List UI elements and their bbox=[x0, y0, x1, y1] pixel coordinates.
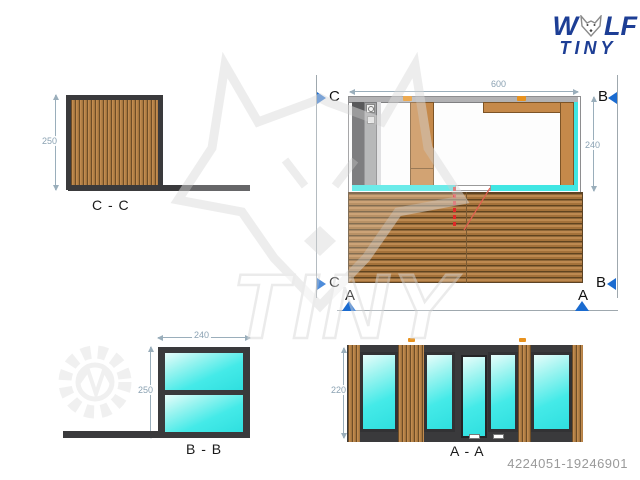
aa-entry-door bbox=[461, 355, 487, 438]
dim-text-bb-height: 250 bbox=[136, 385, 155, 395]
aa-slat-column-4 bbox=[572, 345, 583, 442]
listing-id-number: 4224051-19246901 bbox=[507, 456, 628, 471]
technical-drawing-sheet: 250 C - C C B C B A A 600 580 220 240 bbox=[0, 0, 640, 480]
bb-glass-lower bbox=[165, 395, 243, 432]
aa-window-4 bbox=[531, 352, 572, 432]
door-handle-icon bbox=[469, 434, 480, 439]
aa-window-1 bbox=[360, 352, 398, 432]
logo-line-2: TINY bbox=[547, 38, 629, 59]
aa-note-mark bbox=[519, 338, 526, 342]
door-handle-icon bbox=[493, 434, 504, 439]
wolf-tiny-logo: W LF TINY bbox=[519, 12, 637, 59]
aa-slat-column-2 bbox=[398, 345, 424, 442]
logo-line-1: W LF bbox=[519, 12, 637, 40]
bb-floor-platform bbox=[63, 431, 163, 438]
dim-text-aa-height: 220 bbox=[329, 385, 348, 395]
wolf-head-icon bbox=[579, 15, 603, 37]
bb-glass-upper bbox=[165, 353, 243, 390]
aa-slat-column-1 bbox=[348, 345, 360, 442]
aa-window-3 bbox=[488, 352, 518, 432]
logo-text-w: W bbox=[553, 12, 578, 40]
bb-view-label: B - B bbox=[186, 441, 222, 457]
aa-window-2 bbox=[424, 352, 455, 432]
aa-slat-column-3 bbox=[518, 345, 531, 442]
aa-note-mark bbox=[408, 338, 415, 342]
dim-text-bb-width: 240 bbox=[192, 330, 211, 340]
logo-text-lf: LF bbox=[604, 12, 637, 40]
aa-view-label: A - A bbox=[450, 443, 485, 459]
